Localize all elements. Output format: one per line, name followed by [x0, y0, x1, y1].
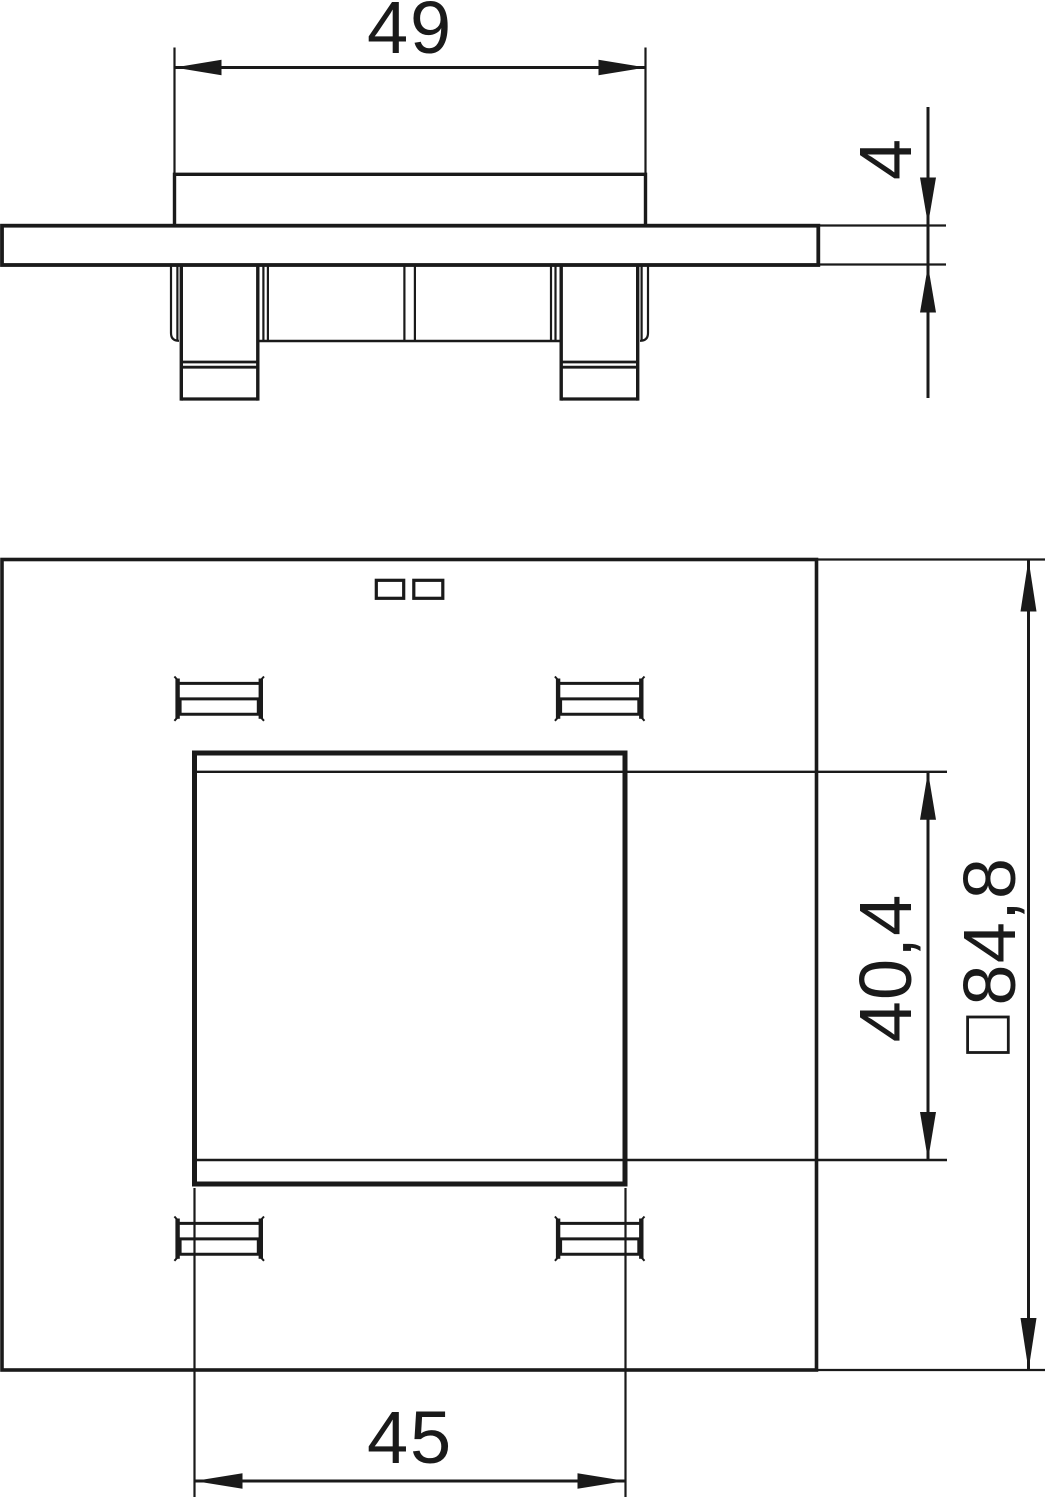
- svg-text:4: 4: [844, 139, 927, 180]
- svg-text:84,8: 84,8: [948, 857, 1031, 1006]
- svg-text:40,4: 40,4: [844, 894, 927, 1043]
- svg-text:45: 45: [367, 1396, 453, 1479]
- svg-text:49: 49: [367, 0, 453, 69]
